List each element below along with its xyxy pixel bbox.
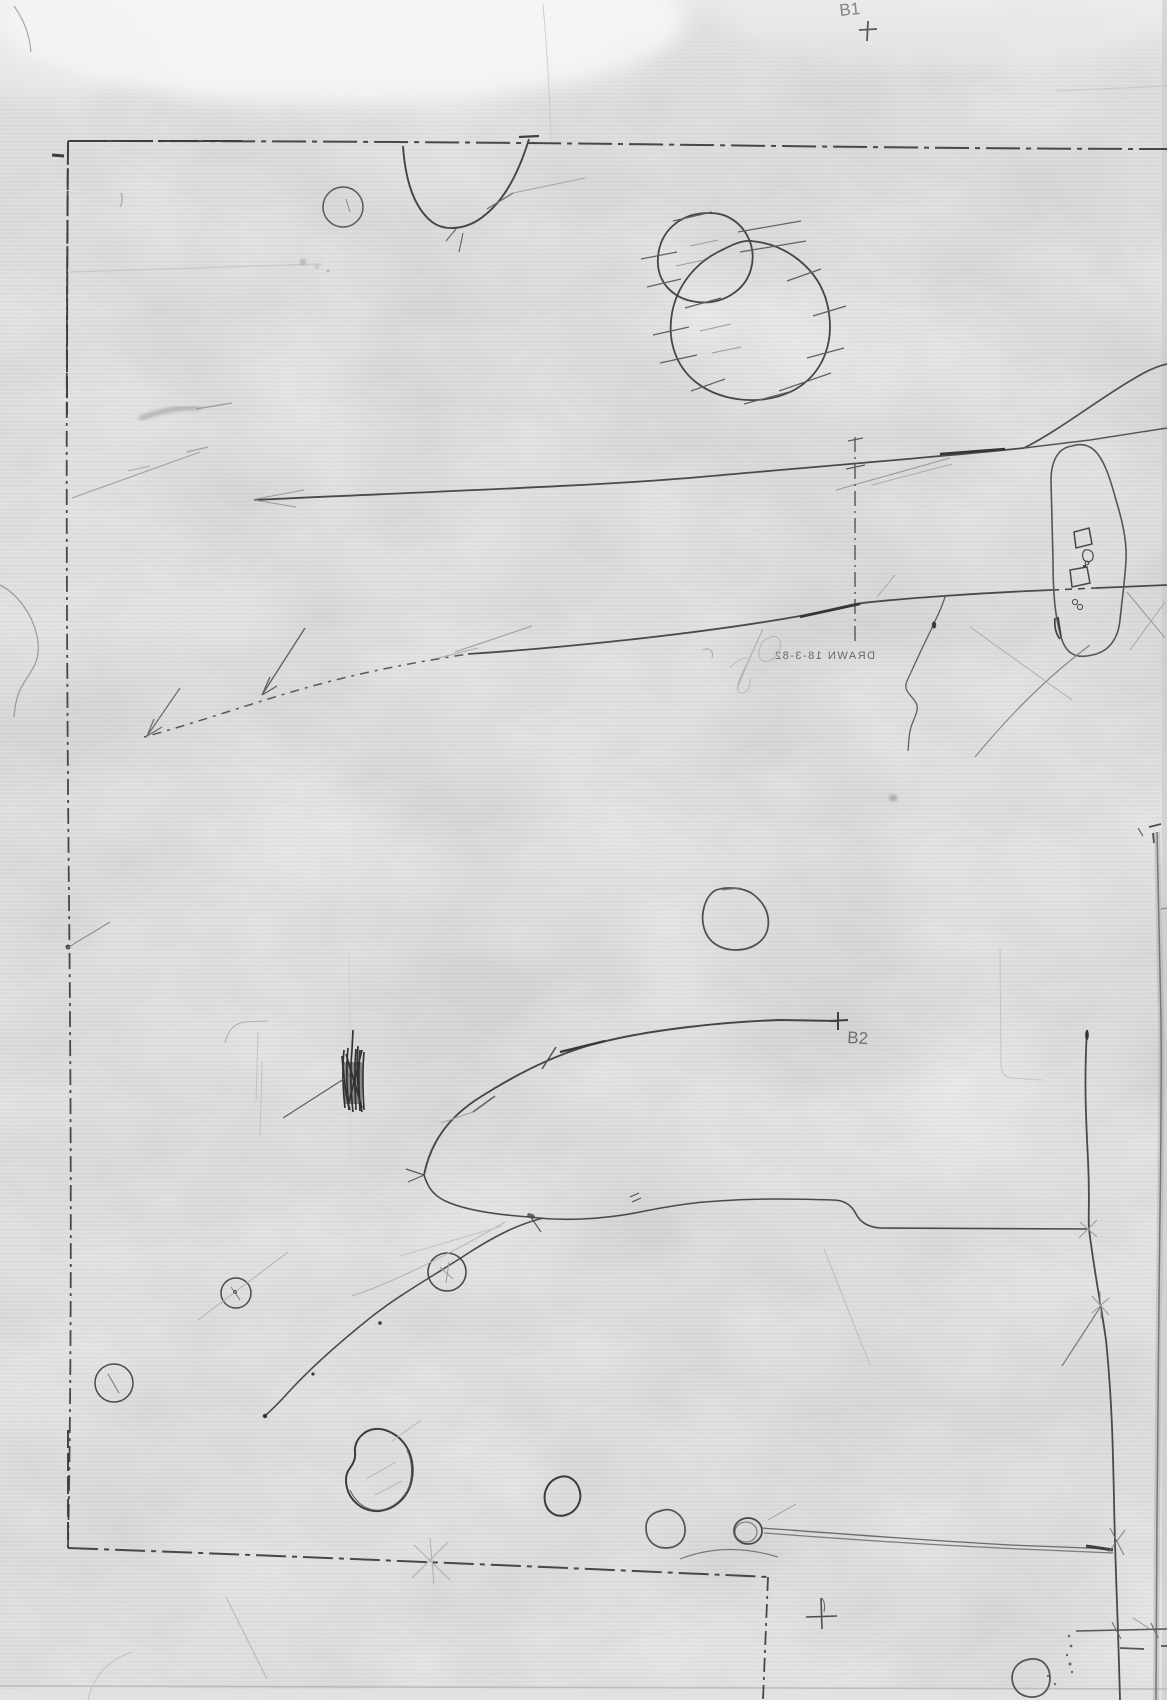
svg-text:B2: B2: [847, 1028, 869, 1048]
svg-text:B1: B1: [838, 0, 861, 20]
